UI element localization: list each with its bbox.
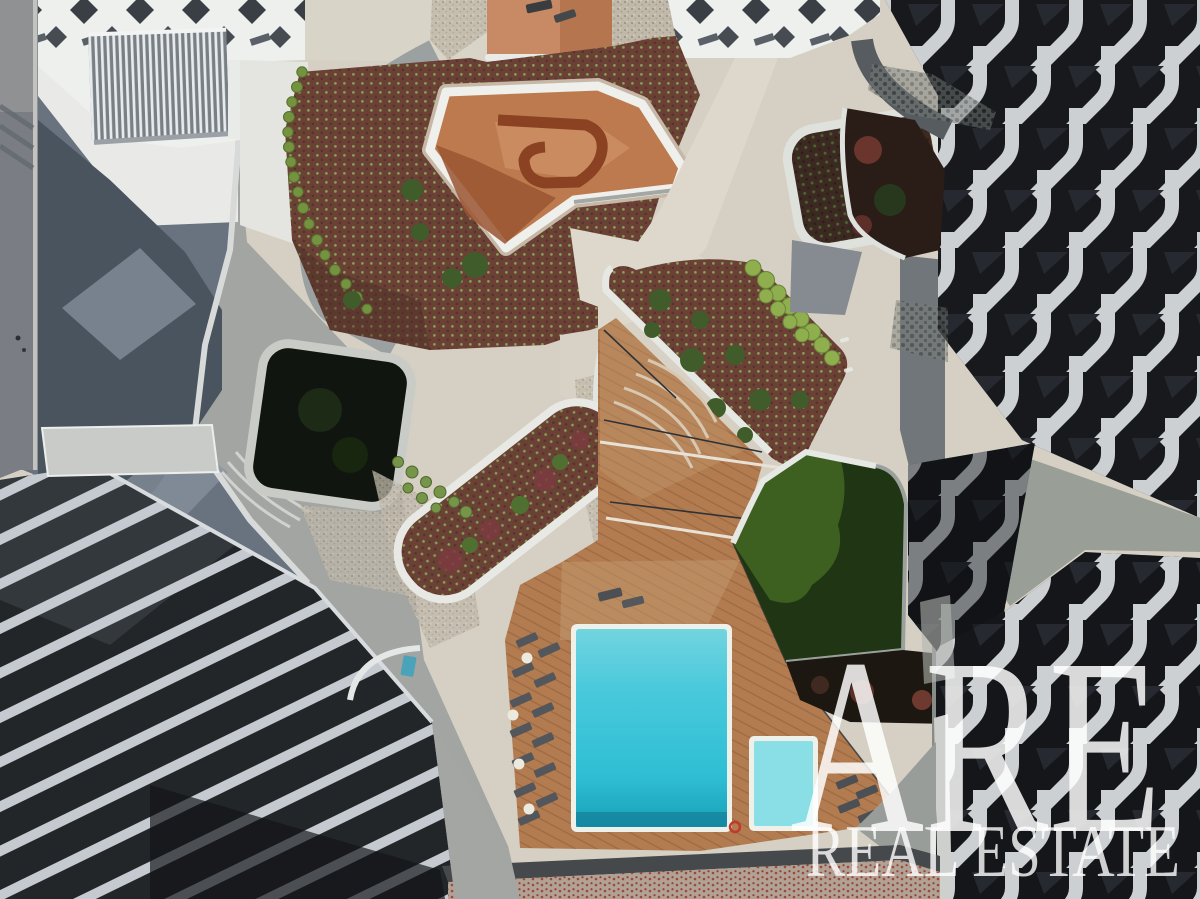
svg-text:REAL ESTATE: REAL ESTATE (806, 811, 1180, 893)
